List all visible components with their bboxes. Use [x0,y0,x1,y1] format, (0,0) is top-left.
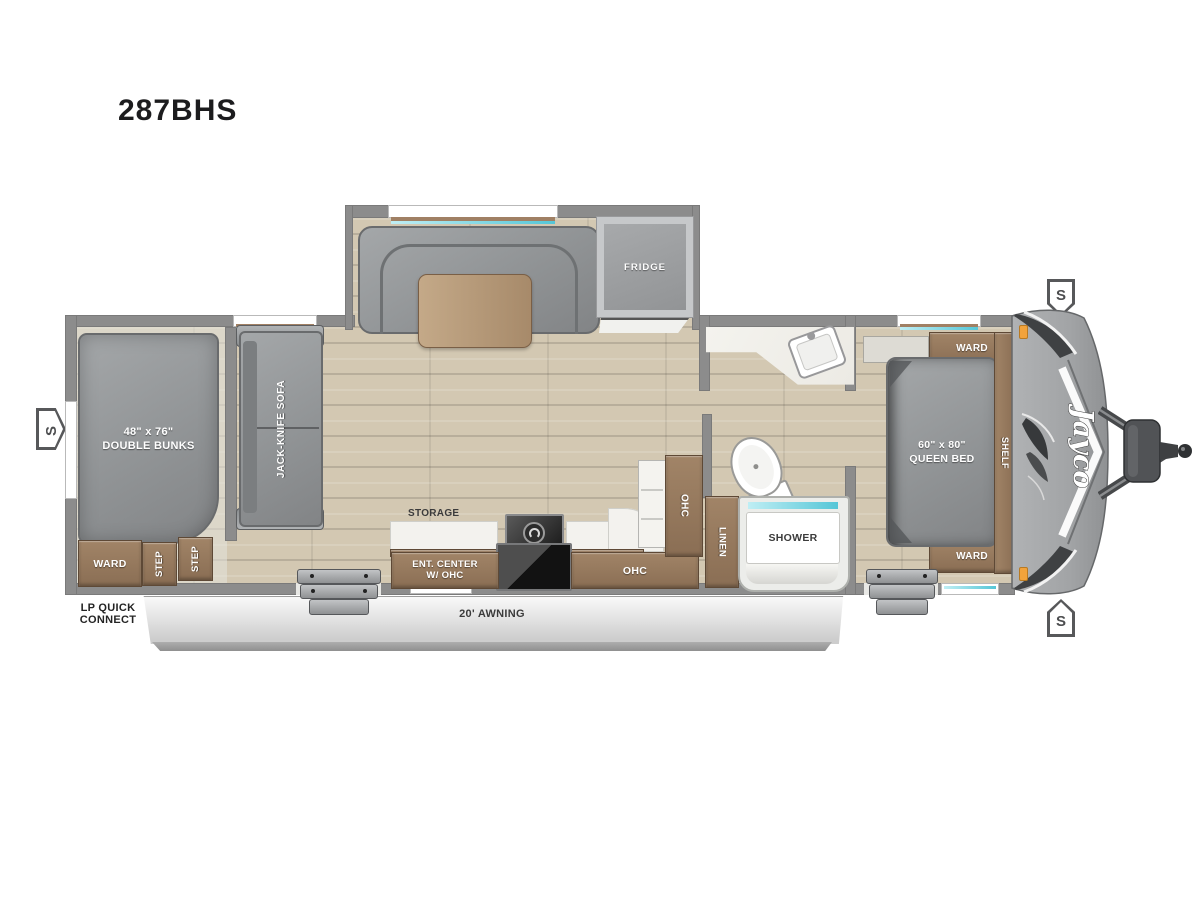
window-slideout-glass [391,221,555,224]
lp-quick-connect-label: LP QUICK CONNECT [72,602,144,626]
stove [496,514,568,587]
speaker-icon-front-bottom: S [1047,599,1075,637]
awning-label: 20' AWNING [138,608,846,620]
kitchen-counter-left [390,521,498,552]
jack-knife-sofa: JACK-KNIFE SOFA [236,325,322,528]
pantry-shelves [638,460,666,548]
window-bedroom-bottom [941,583,999,595]
ward-cabinet-bunks: WARD [78,540,142,587]
wall-bath-left-mid [702,414,712,498]
bunks-size-label: 48" x 76" [124,426,174,438]
step-2: STEP [178,537,213,581]
marker-light-bottom [1019,567,1028,581]
fridge-label: FRIDGE [624,262,666,273]
hitch-ball [1178,444,1192,458]
ohc-cabinet-upper: OHC [665,455,703,557]
storage-label: STORAGE [408,508,459,519]
hitch-coupler [1160,442,1178,460]
hitch [1098,398,1200,508]
bed-name-label: QUEEN BED [909,453,974,465]
queen-bed: 60" x 80" QUEEN BED [886,357,998,547]
bed-size-label: 60" x 80" [918,439,966,451]
window-rear [65,401,77,499]
double-bunks-bed: 48" x 76" DOUBLE BUNKS [78,333,219,544]
wall-bath-left-upper [699,315,710,391]
linen-cabinet: LINEN [705,496,739,588]
window-bedroom-top-glass [900,327,978,330]
window-bedroom-bottom-glass [944,586,996,589]
ent-center-cabinet: ENT. CENTER W/ OHC [391,552,499,589]
shower: SHOWER [738,496,850,592]
speaker-icon-rear: S [36,408,66,450]
ohc-cabinet-lower: OHC [571,552,699,589]
floorplan-canvas: 287BHS S S S 20' AWNING LP QUICK CONNECT [0,0,1200,900]
jayco-logo: Jayco [1067,403,1098,488]
step-1: STEP [142,542,177,586]
wall-slideout-left [345,205,353,330]
fridge: FRIDGE [596,216,694,318]
page-title: 287BHS [118,94,237,128]
shower-glass [748,502,838,509]
entry-steps-main [297,569,381,617]
marker-light-top [1019,325,1028,339]
awning: 20' AWNING [138,596,846,653]
entry-steps-bedroom [866,569,938,617]
dinette-table [418,274,532,348]
sofa-label: JACK-KNIFE SOFA [276,380,287,478]
fridge-front-panel [599,318,691,333]
front-cap: Jayco [1010,306,1112,598]
bunks-name-label: DOUBLE BUNKS [102,440,194,452]
burner-icon [523,522,545,544]
